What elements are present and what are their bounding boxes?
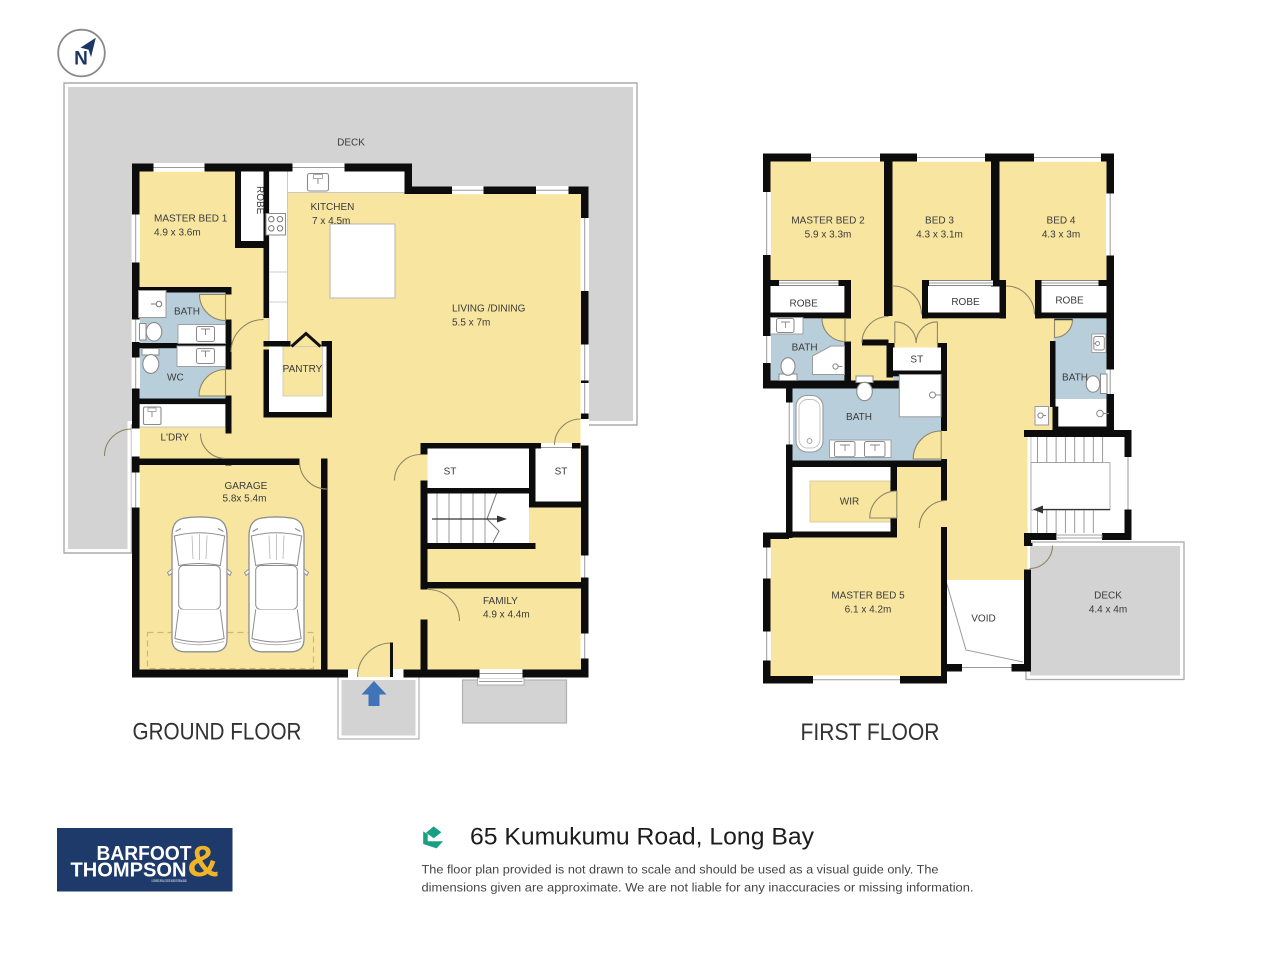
- svg-text:7 x 4.5m: 7 x 4.5m: [312, 216, 350, 227]
- svg-text:BATH: BATH: [792, 343, 818, 354]
- svg-text:5.8x 5.4m: 5.8x 5.4m: [223, 494, 267, 505]
- svg-text:ROBE: ROBE: [1055, 296, 1084, 307]
- svg-text:ROBE: ROBE: [254, 186, 265, 215]
- svg-text:ROBE: ROBE: [790, 299, 819, 310]
- svg-text:6.1 x 4.2m: 6.1 x 4.2m: [845, 605, 892, 616]
- svg-text:The floor plan provided is not: The floor plan provided is not drawn to …: [422, 863, 939, 877]
- svg-text:ROBE: ROBE: [951, 297, 980, 308]
- svg-text:MASTER BED 5: MASTER BED 5: [831, 591, 905, 602]
- svg-text:5.9 x 3.3m: 5.9 x 3.3m: [805, 230, 852, 241]
- svg-text:L'DRY: L'DRY: [161, 433, 190, 444]
- svg-text:BATH: BATH: [846, 412, 872, 423]
- svg-text:DECK: DECK: [1094, 591, 1122, 602]
- svg-text:4.9 x 3.6m: 4.9 x 3.6m: [154, 228, 201, 239]
- svg-text:BATH: BATH: [174, 307, 200, 318]
- svg-text:4.3 x 3.1m: 4.3 x 3.1m: [916, 230, 963, 241]
- svg-text:WC: WC: [167, 373, 184, 384]
- svg-text:BED 3: BED 3: [925, 216, 954, 227]
- svg-text:FIRST FLOOR: FIRST FLOOR: [801, 719, 940, 746]
- svg-text:4.4 x 4m: 4.4 x 4m: [1089, 605, 1127, 616]
- svg-text:4.9 x 4.4m: 4.9 x 4.4m: [483, 610, 530, 621]
- svg-text:&: &: [187, 837, 219, 886]
- svg-text:BED 4: BED 4: [1047, 216, 1076, 227]
- svg-text:LIVING /DINING: LIVING /DINING: [452, 304, 526, 315]
- svg-text:VOID: VOID: [971, 614, 995, 625]
- svg-text:PANTRY: PANTRY: [283, 364, 323, 375]
- svg-text:FAMILY: FAMILY: [483, 596, 518, 607]
- svg-text:LICENSED REAL ESTATE AGENTS RE: LICENSED REAL ESTATE AGENTS REAA 2008: [152, 879, 187, 883]
- svg-text:MASTER BED 2: MASTER BED 2: [791, 216, 865, 227]
- svg-text:GROUND FLOOR: GROUND FLOOR: [133, 719, 302, 746]
- svg-text:dimensions given are approxima: dimensions given are approximate. We are…: [422, 881, 974, 895]
- svg-text:4.3 x 3m: 4.3 x 3m: [1042, 230, 1080, 241]
- svg-text:N: N: [74, 49, 88, 70]
- svg-text:ST: ST: [910, 355, 923, 366]
- svg-text:ST: ST: [444, 467, 457, 478]
- svg-text:WIR: WIR: [840, 497, 859, 508]
- svg-text:MASTER BED 1: MASTER BED 1: [154, 214, 228, 225]
- svg-text:65 Kumukumu Road, Long Bay: 65 Kumukumu Road, Long Bay: [470, 824, 814, 851]
- svg-text:DECK: DECK: [337, 138, 365, 149]
- svg-text:5.5 x 7m: 5.5 x 7m: [452, 318, 490, 329]
- svg-text:ST: ST: [555, 467, 568, 478]
- svg-text:GARAGE: GARAGE: [225, 481, 268, 492]
- svg-text:KITCHEN: KITCHEN: [311, 202, 355, 213]
- svg-text:BATH: BATH: [1062, 373, 1088, 384]
